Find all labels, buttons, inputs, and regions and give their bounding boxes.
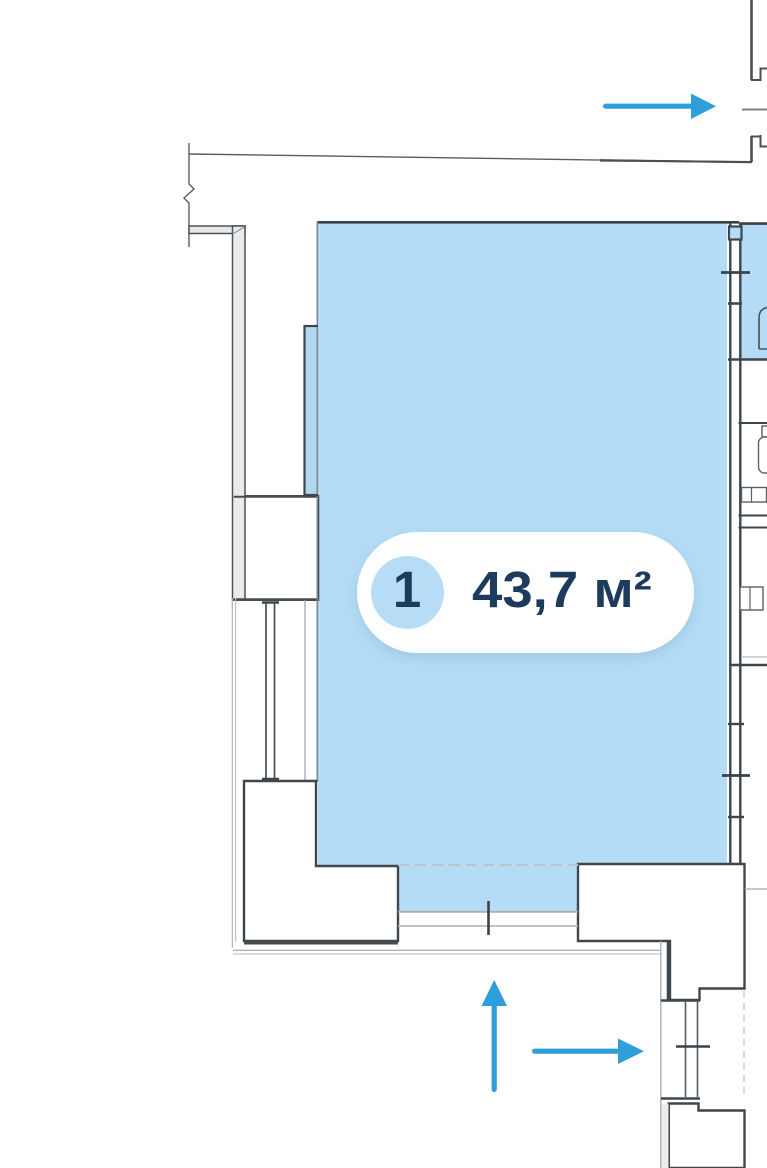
svg-text:43,7 м²: 43,7 м² <box>472 562 652 619</box>
svg-text:1: 1 <box>393 561 421 618</box>
